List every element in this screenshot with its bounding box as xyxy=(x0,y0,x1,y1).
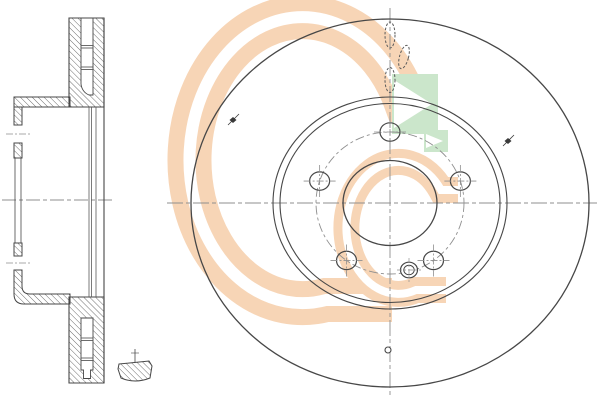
detail-section-shape xyxy=(118,361,152,381)
hat-face-upper2 xyxy=(14,143,22,158)
center-bore-silhouette xyxy=(15,158,21,243)
surface-marker-slash-1 xyxy=(228,114,239,125)
vent-channel-bottom xyxy=(81,318,93,379)
detail-view xyxy=(118,349,152,381)
hat-flange-top xyxy=(14,97,70,107)
small-hole xyxy=(385,347,391,353)
technical-drawing xyxy=(0,0,600,400)
hat-face-lower2-and-flange xyxy=(14,270,70,304)
surface-marker-slash-2 xyxy=(503,135,514,146)
vent-channel-top xyxy=(81,18,93,95)
hat-face-lower xyxy=(14,243,22,256)
hat-face-upper xyxy=(14,107,22,125)
hat-drum-silhouette xyxy=(89,107,96,297)
section-view xyxy=(2,18,114,383)
